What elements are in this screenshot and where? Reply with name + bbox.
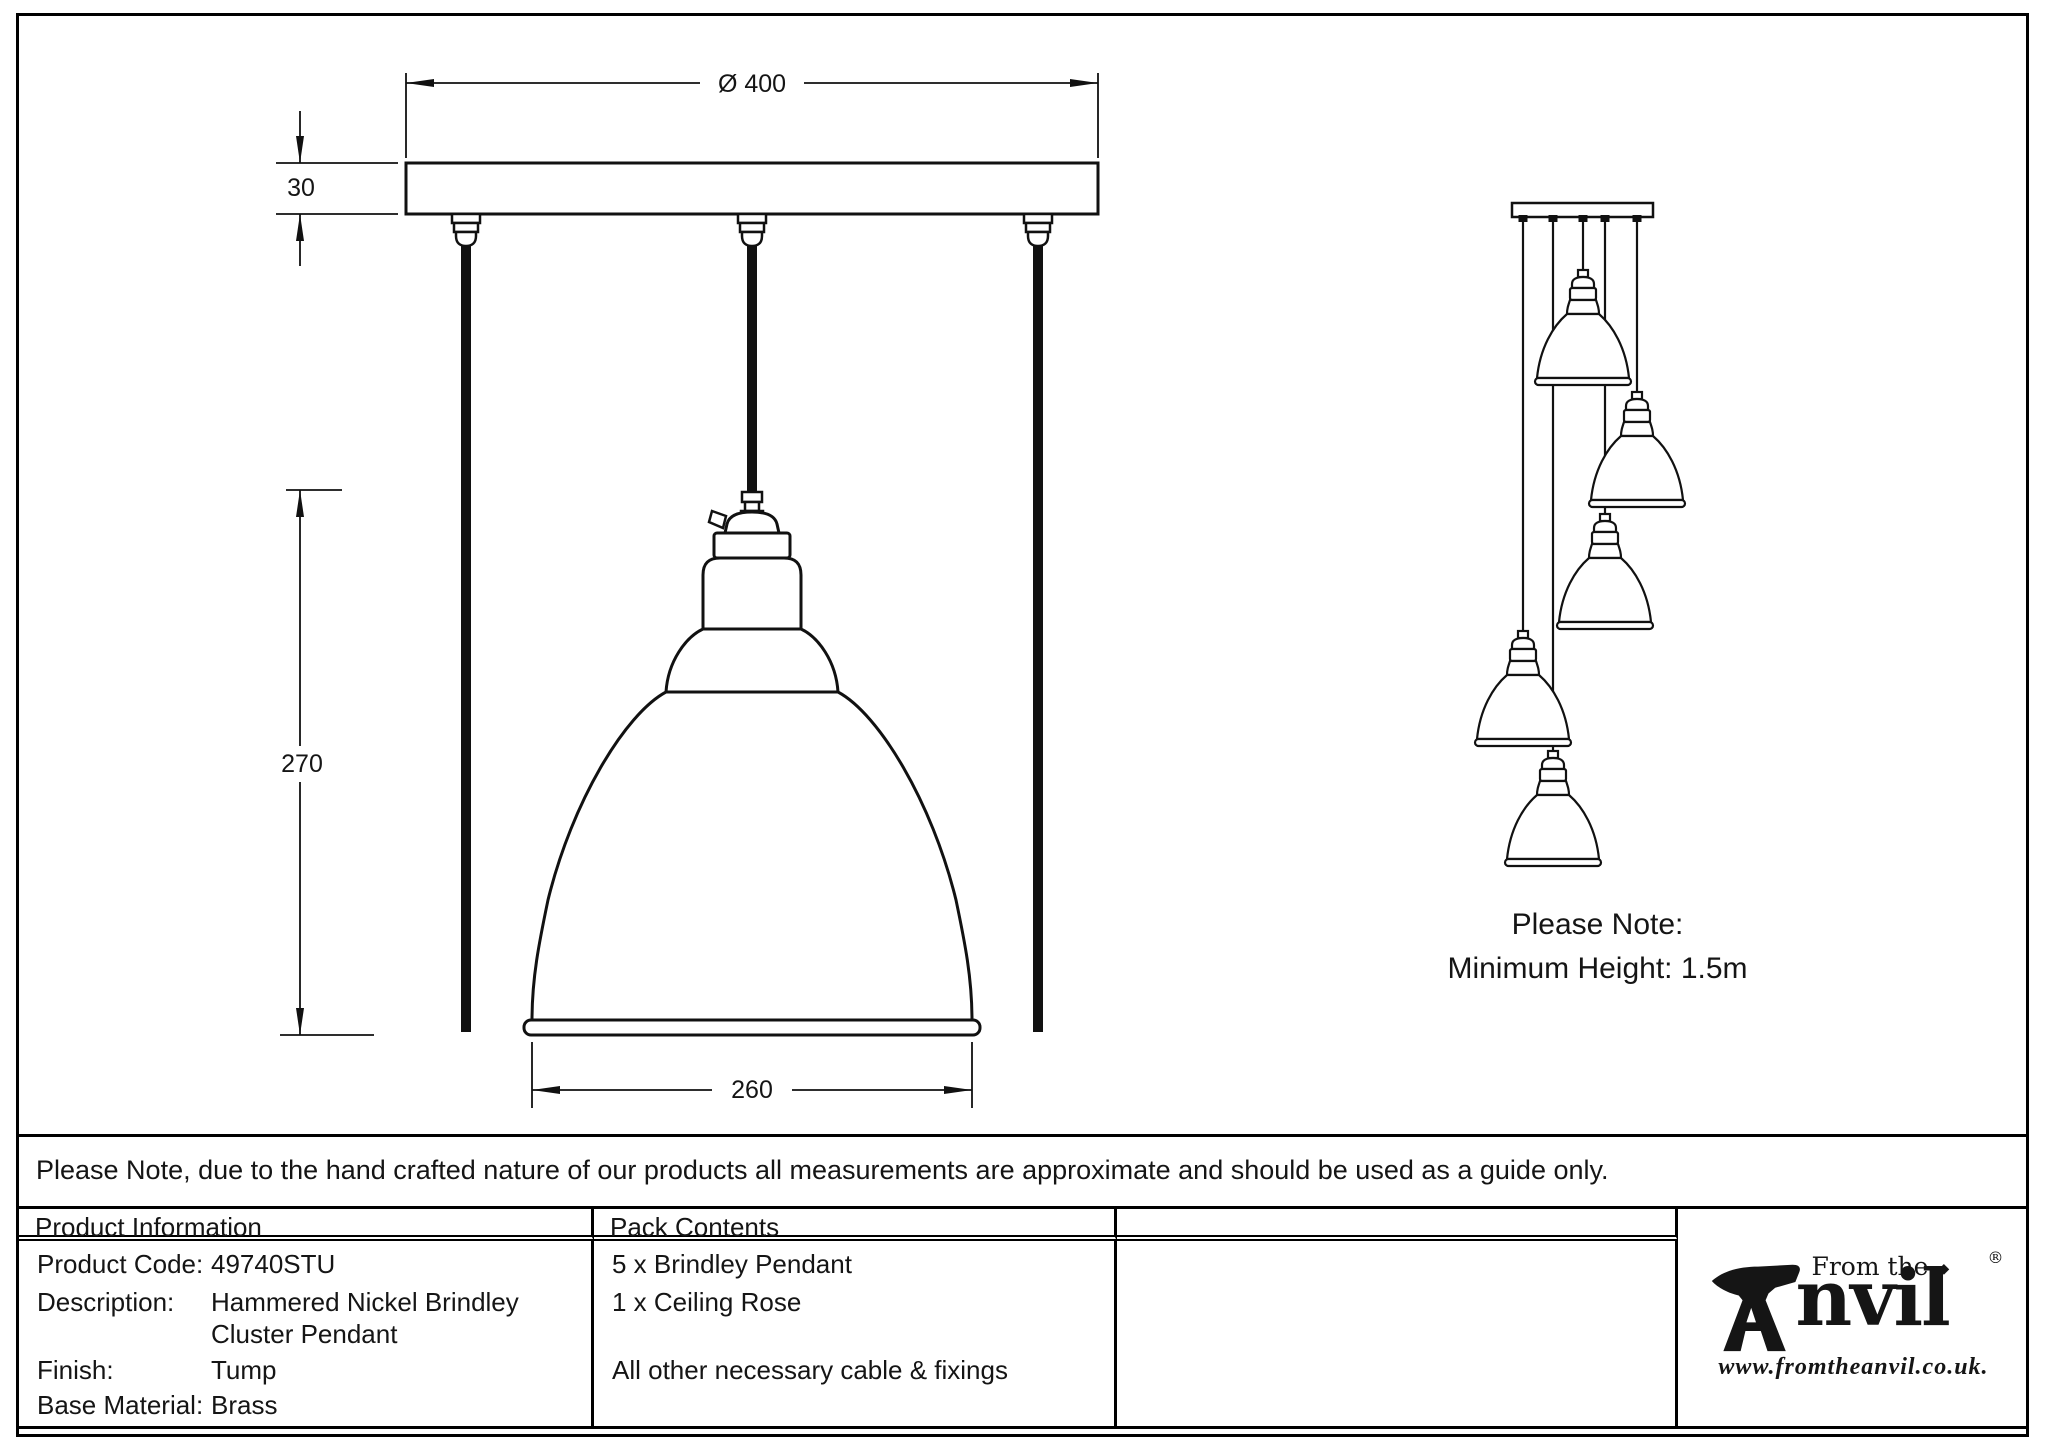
dim-height-label: 270: [281, 750, 323, 778]
row-label: Base Material:: [37, 1390, 203, 1421]
disclaimer-text: Please Note, due to the hand crafted nat…: [36, 1155, 1609, 1186]
row-value: Tump: [211, 1355, 277, 1386]
table-row: Finish: Tump: [19, 1355, 591, 1383]
dim-thickness-label: 30: [287, 174, 315, 202]
note-line-2: Minimum Height: 1.5m: [1375, 947, 1820, 991]
cluster-view: [1475, 203, 1685, 866]
row-value: Brass: [211, 1390, 277, 1421]
anvil-icon: [1708, 1258, 1804, 1354]
pack-contents-header: Pack Contents: [594, 1209, 1117, 1241]
pack-item: 5 x Brindley Pendant: [612, 1249, 852, 1280]
row-label: Description:: [37, 1287, 174, 1318]
row-label: Finish:: [37, 1355, 114, 1386]
front-view: [406, 163, 1098, 1035]
note-line-1: Please Note:: [1375, 903, 1820, 947]
disclaimer-band: Please Note, due to the hand crafted nat…: [19, 1134, 2029, 1203]
minimum-height-note: Please Note: Minimum Height: 1.5m: [1375, 903, 1820, 991]
row-value: Cluster Pendant: [211, 1319, 397, 1350]
product-info-body: Product Code: 49740STU Description: Hamm…: [19, 1241, 594, 1426]
pendant-lamp: [524, 492, 980, 1035]
pack-item: 1 x Ceiling Rose: [612, 1287, 801, 1318]
cord-grips: [452, 214, 1052, 246]
cluster-pendants: [1475, 270, 1685, 866]
from-the-anvil-logo: From the◆ nvil ® www.fromtheanvil.co.uk.: [1708, 1252, 2000, 1384]
spec-sheet-page: Ø 400 30 270 260: [0, 0, 2048, 1448]
empty-column-header: [1117, 1209, 1678, 1241]
product-info-header: Product Information: [19, 1209, 594, 1241]
table-row: Base Material: Brass: [19, 1390, 591, 1418]
row-value: 49740STU: [211, 1249, 335, 1280]
cluster-ceiling-plate: [1512, 203, 1653, 217]
shade-rim: [524, 1020, 980, 1035]
logo-wordmark: nvil: [1796, 1260, 1949, 1338]
row-label: Product Code:: [37, 1249, 203, 1280]
logo-url: www.fromtheanvil.co.uk.: [1708, 1354, 2000, 1381]
pack-item: All other necessary cable & fixings: [612, 1355, 1008, 1386]
shade: [532, 692, 972, 1020]
table-row: Cluster Pendant: [19, 1319, 591, 1347]
table-row: Product Code: 49740STU: [19, 1249, 591, 1277]
holder-screw-nub: [709, 511, 726, 528]
logo-cell: From the◆ nvil ® www.fromtheanvil.co.uk.: [1678, 1209, 2029, 1426]
dim-shade-width-label: 260: [731, 1076, 773, 1104]
dim-diameter-label: Ø 400: [718, 70, 786, 98]
empty-column-body: [1117, 1241, 1678, 1426]
table-row: Description: Hammered Nickel Brindley: [19, 1287, 591, 1315]
registered-trademark-icon: ®: [1988, 1248, 2004, 1267]
ceiling-plate: [406, 163, 1098, 214]
pack-contents-body: 5 x Brindley Pendant 1 x Ceiling Rose Al…: [594, 1241, 1117, 1426]
spec-table: Product Information Pack Contents From t…: [19, 1206, 2029, 1429]
row-value: Hammered Nickel Brindley: [211, 1287, 519, 1318]
